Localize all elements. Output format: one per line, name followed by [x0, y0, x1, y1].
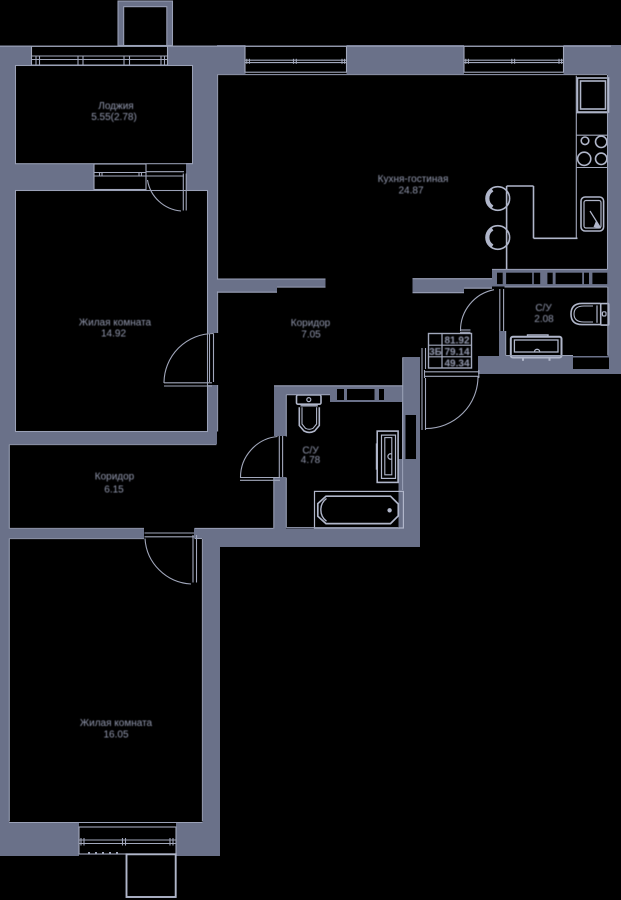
- svg-text:Кухня-гостиная: Кухня-гостиная: [378, 174, 449, 185]
- svg-text:14.92: 14.92: [101, 329, 126, 340]
- svg-text:24.87: 24.87: [398, 186, 423, 197]
- svg-text:Лоджия: Лоджия: [98, 101, 133, 112]
- svg-text:4.78: 4.78: [301, 455, 321, 466]
- svg-text:16.05: 16.05: [103, 730, 128, 741]
- svg-text:С/У: С/У: [535, 303, 552, 314]
- svg-text:5.55(2.78): 5.55(2.78): [91, 112, 137, 123]
- svg-text:3Б: 3Б: [429, 347, 442, 358]
- svg-text:Жилая комната: Жилая комната: [80, 718, 153, 729]
- svg-text:Коридор: Коридор: [95, 472, 135, 483]
- svg-text:Жилая комната: Жилая комната: [79, 318, 152, 329]
- svg-text:2.08: 2.08: [534, 314, 554, 325]
- svg-text:Коридор: Коридор: [291, 318, 331, 329]
- svg-text:6.15: 6.15: [104, 485, 124, 496]
- svg-text:81.92: 81.92: [444, 336, 469, 347]
- svg-text:79.14: 79.14: [444, 347, 469, 358]
- svg-text:49.34: 49.34: [444, 359, 469, 370]
- svg-text:7.05: 7.05: [301, 330, 321, 341]
